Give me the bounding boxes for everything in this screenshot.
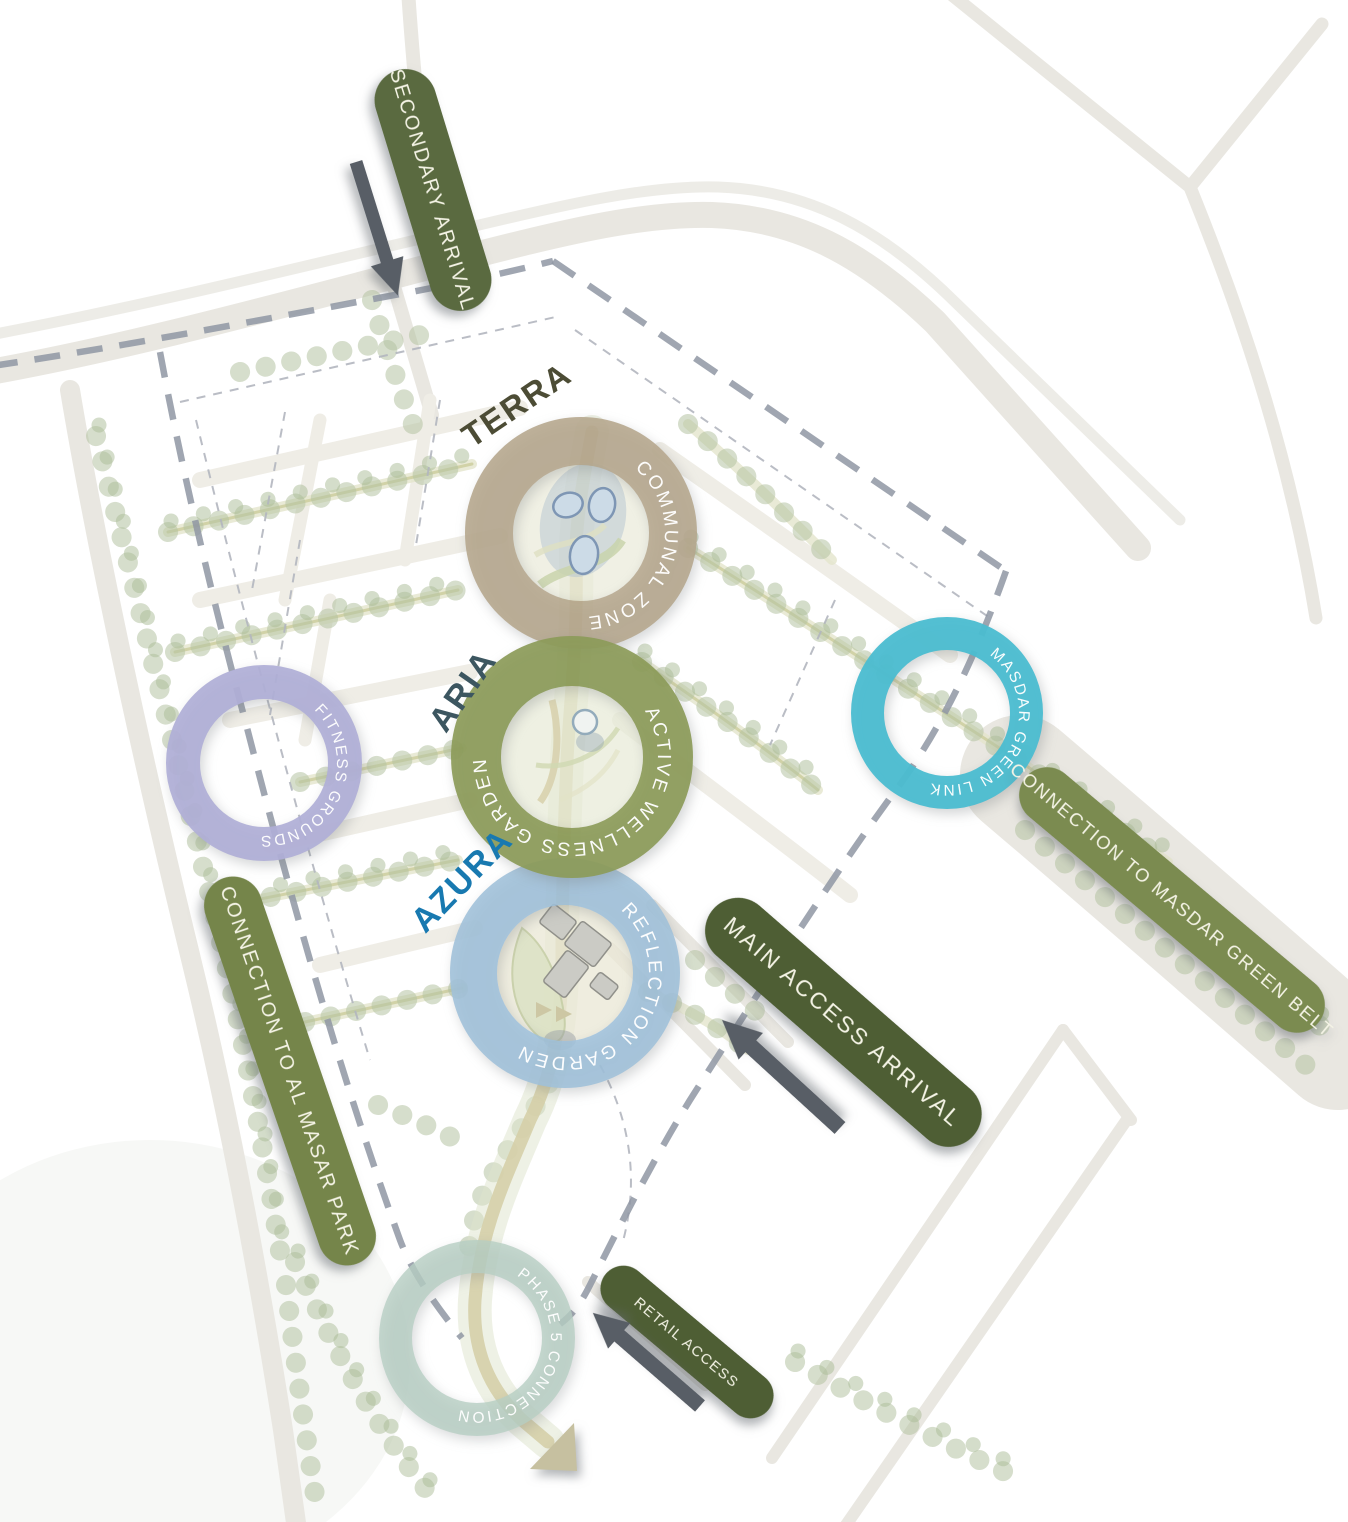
site-plan-svg: FITNESS GROUNDS MASDAR GREEN LINK PHASE … <box>0 0 1348 1522</box>
aria-interior <box>501 686 643 828</box>
callout-label: CONNECTION TO MASDAR GREEN BELT <box>1006 758 1338 1041</box>
road-topright-2 <box>1190 24 1322 187</box>
pond <box>573 710 597 734</box>
road-topright-1 <box>952 0 1190 187</box>
road-topright-3 <box>1190 187 1316 618</box>
callout-label: MAIN ACCESS ARRIVAL <box>719 912 967 1133</box>
masterplan-diagram: FITNESS GROUNDS MASDAR GREEN LINK PHASE … <box>0 0 1348 1522</box>
callout-label: RETAIL ACCESS <box>631 1295 742 1392</box>
callout-connection-masdar: CONNECTION TO MASDAR GREEN BELT <box>995 745 1348 1055</box>
road-bottomright-3 <box>1063 1030 1131 1120</box>
